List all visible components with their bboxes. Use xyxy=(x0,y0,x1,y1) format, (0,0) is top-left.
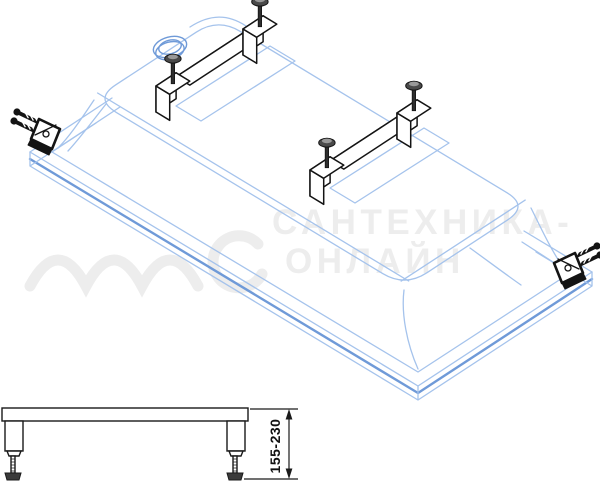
watermark-line1: САНТЕХНИКА- xyxy=(272,203,573,242)
side-view-leg-left xyxy=(5,421,23,451)
dimension-label: 155-230 xyxy=(267,419,283,474)
bathtub-frame-diagram: САНТЕХНИКА- ОНЛАЙН xyxy=(0,0,600,485)
side-view: 155-230 xyxy=(2,408,298,480)
corner-bracket-left xyxy=(10,108,60,155)
corner-bracket-right xyxy=(554,242,600,289)
side-view-rail-bar xyxy=(2,408,248,421)
mounting-rail-rear xyxy=(156,0,277,120)
height-dimension: 155-230 xyxy=(244,409,298,479)
mounting-plate-rear xyxy=(176,46,295,121)
mounting-rail-front xyxy=(310,81,431,204)
side-view-leg-right xyxy=(227,421,245,451)
product-illustration: САНТЕХНИКА- ОНЛАЙН xyxy=(0,0,600,485)
watermark-logo-swoosh xyxy=(30,260,198,286)
side-view-foot-right xyxy=(227,473,243,480)
side-view-foot-left xyxy=(5,473,21,480)
watermark-logo-c xyxy=(213,236,262,288)
